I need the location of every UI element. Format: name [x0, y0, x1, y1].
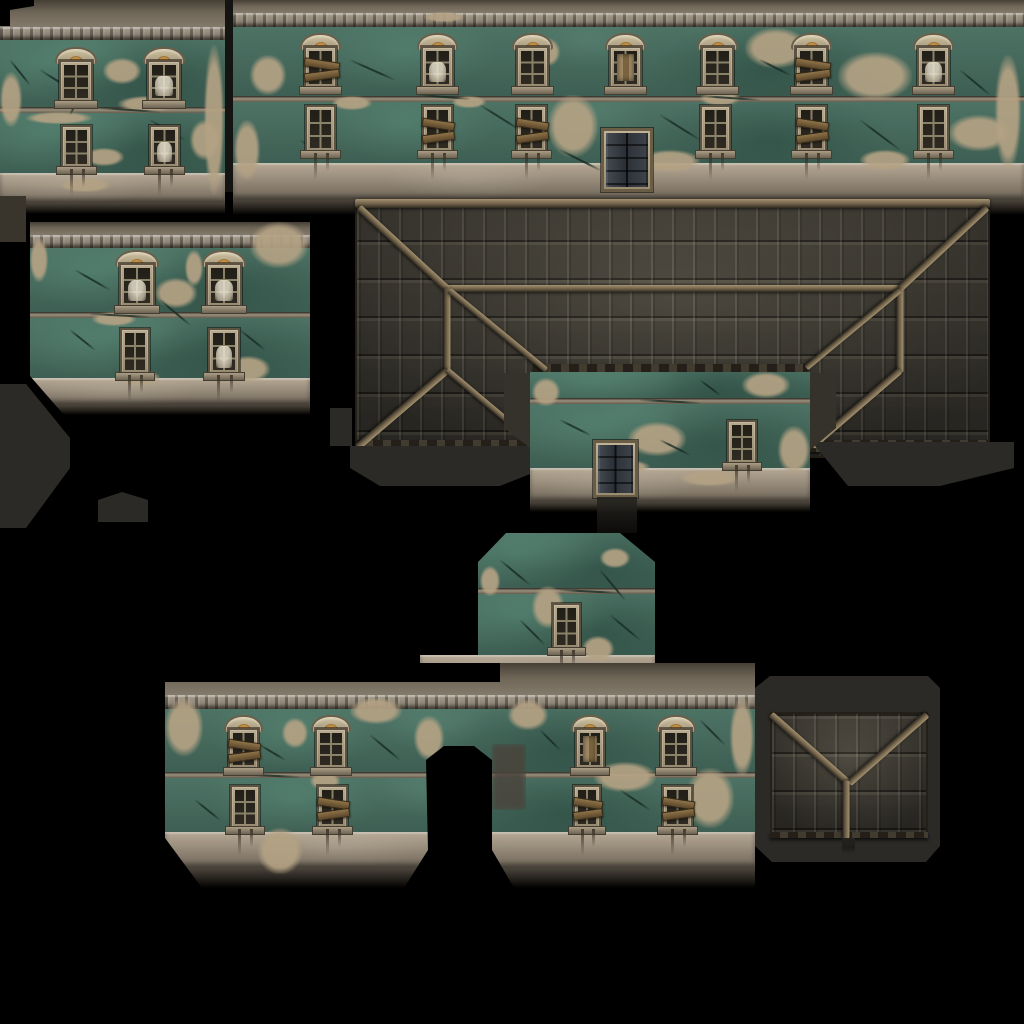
window-glass [213, 333, 235, 370]
window-ornate [59, 47, 93, 103]
window-plain [918, 105, 949, 153]
window-sill [223, 767, 264, 776]
window-stain [250, 829, 253, 847]
window-sill [696, 86, 739, 95]
window-frame [61, 125, 92, 169]
plaster-damage [424, 12, 464, 22]
window-plain [120, 328, 150, 375]
window-shutter [583, 736, 597, 762]
window-frame [660, 728, 692, 770]
window-frame [727, 420, 757, 465]
window-frame [208, 328, 240, 375]
window-glass [614, 51, 637, 84]
window-glass [665, 733, 687, 765]
window-sill [299, 86, 342, 95]
window-sill [203, 372, 245, 381]
window-curtain [429, 62, 446, 82]
window-stain [314, 153, 317, 180]
window-stain [230, 375, 233, 393]
window-frame [662, 785, 693, 829]
window-glass [923, 110, 944, 148]
plaster-damage [838, 52, 912, 100]
window-plain [573, 785, 601, 829]
window-sill [790, 86, 833, 95]
plaster-damage [103, 58, 141, 84]
window-stain [927, 153, 930, 180]
window-glass [705, 110, 726, 148]
window-sill [115, 372, 155, 381]
window-sill [142, 100, 186, 109]
window-ornate [315, 715, 347, 770]
window-stain [128, 375, 131, 402]
window-frame [516, 46, 549, 89]
window-ornate [228, 715, 259, 770]
window-frame [575, 728, 605, 770]
plaster-damage [730, 698, 754, 776]
door-leaf [598, 445, 633, 493]
facade-left-mid [30, 222, 310, 415]
window-plain [422, 105, 453, 153]
window-stain [581, 829, 584, 856]
window-frame [119, 263, 155, 308]
window-stain [170, 169, 173, 187]
window-glass [310, 110, 331, 148]
window-frame [147, 60, 181, 103]
window-plain [208, 328, 240, 375]
roof-ridge-beam [447, 285, 900, 292]
window-stain [431, 153, 434, 180]
window-stain [217, 375, 220, 402]
window-sill [657, 826, 698, 835]
plaster-damage [282, 718, 308, 748]
window-plain [516, 105, 547, 153]
window-sill [912, 86, 955, 95]
uv-seam-top [225, 0, 233, 192]
window-glass [557, 608, 576, 645]
window-curtain [155, 76, 172, 96]
window-stain [140, 375, 143, 393]
window-stain [592, 829, 595, 847]
window-frame [422, 105, 453, 153]
window-frame [304, 46, 337, 89]
window-frame [552, 603, 581, 650]
window-stain [721, 153, 724, 171]
facade-rear-door [530, 372, 810, 512]
plaster-damage [548, 95, 598, 157]
window-ornate [421, 33, 454, 89]
facade-top-left-band-base [0, 173, 225, 203]
window-stain [939, 153, 942, 171]
window-sill [56, 166, 97, 175]
window-glass [64, 65, 88, 98]
plaster-damage [686, 768, 734, 828]
window-sill [511, 150, 552, 159]
facade-left-mid-band-fade [30, 405, 310, 415]
facade-strip-bottom-band-cornice [165, 695, 755, 709]
entrance-door [593, 440, 638, 498]
window-stain [709, 153, 712, 180]
window-glass [922, 51, 945, 84]
facade-top-left-band-cornice [0, 27, 225, 40]
window-glass [521, 51, 544, 84]
window-frame [918, 105, 949, 153]
window-sill [416, 86, 459, 95]
window-stain [326, 829, 329, 856]
window-stain [525, 153, 528, 180]
window-glass [66, 130, 87, 164]
window-glass [152, 65, 176, 98]
plaster-damage [185, 250, 203, 286]
window-sill [570, 767, 610, 776]
uv-margin-under-roof-right [812, 442, 1014, 486]
plaster-damage [995, 55, 1021, 170]
plaster-damage [30, 238, 48, 282]
plaster-damage [582, 636, 614, 662]
window-curtain [157, 142, 172, 162]
window-plain [700, 105, 731, 153]
window-sill [225, 826, 265, 835]
window-frame [795, 46, 828, 89]
window-frame [796, 105, 827, 153]
window-frame [573, 785, 601, 829]
facade-top-left [0, 0, 225, 214]
plaster-damage [165, 698, 203, 756]
window-ornate [701, 33, 734, 89]
window-glass [235, 790, 255, 824]
window-glass [732, 425, 752, 460]
plaster-damage [26, 112, 92, 124]
plaster-damage [600, 548, 630, 568]
door-leaf [606, 133, 648, 187]
window-frame [317, 785, 348, 829]
window-sill [144, 166, 185, 175]
window-plain [230, 785, 260, 829]
roof-ridge-beam [897, 288, 904, 372]
window-glass [426, 51, 449, 84]
window-sill [312, 826, 353, 835]
window-frame [59, 60, 93, 103]
window-stain [805, 153, 808, 180]
window-frame [701, 46, 734, 89]
plaster-damage [250, 55, 286, 95]
window-ornate [119, 250, 155, 308]
window-frame [206, 263, 242, 308]
window-glass [580, 733, 600, 765]
facade-rear-door-band-fade [530, 502, 810, 512]
window-plain [552, 603, 581, 650]
window-stain [82, 169, 85, 187]
window-frame [230, 785, 260, 829]
facade-strip-top-band-blur [233, 0, 1024, 13]
window-sill [604, 86, 647, 95]
window-stain [338, 829, 341, 847]
window-sill [201, 305, 247, 314]
window-curtain [925, 62, 942, 82]
window-ornate [304, 33, 337, 89]
uv-cut-bottom-strip-top-left [165, 663, 500, 682]
window-sill [417, 150, 458, 159]
plaster-damage [778, 426, 810, 474]
window-sill [300, 150, 341, 159]
window-sill [511, 86, 554, 95]
window-glass [706, 51, 729, 84]
entrance-door [601, 128, 653, 192]
window-plain [796, 105, 827, 153]
window-plain [317, 785, 348, 829]
window-glass [320, 733, 342, 765]
window-glass [211, 268, 237, 303]
window-shutter [617, 54, 634, 81]
window-stain [747, 465, 750, 483]
window-frame [149, 125, 180, 169]
window-stain [683, 829, 686, 847]
roof-ridge-beam [843, 780, 850, 838]
window-sill [547, 647, 586, 656]
window-stain [158, 169, 161, 196]
window-ornate [609, 33, 642, 89]
window-sill [310, 767, 352, 776]
uv-margin-roof-left-sliver [330, 408, 352, 446]
plaster-damage [190, 120, 220, 160]
plaster-damage [332, 96, 372, 110]
window-plain [61, 125, 92, 169]
window-frame [228, 728, 259, 770]
window-ornate [660, 715, 692, 770]
window-stain [238, 829, 241, 856]
window-ornate [147, 47, 181, 103]
window-sill [568, 826, 606, 835]
ridge-shadow-streak [842, 838, 855, 854]
window-sill [722, 462, 762, 471]
window-frame [315, 728, 347, 770]
plaster-damage [350, 698, 402, 724]
window-frame [700, 105, 731, 153]
window-curtain [128, 280, 147, 301]
window-stain [326, 153, 329, 171]
plaster-damage [680, 470, 740, 486]
window-ornate [917, 33, 950, 89]
window-ornate [206, 250, 242, 308]
uv-margin-small-left [98, 492, 148, 522]
window-ornate [795, 33, 828, 89]
plaster-damage [480, 566, 500, 596]
window-stain [537, 153, 540, 171]
window-glass [125, 333, 145, 370]
uv-blur-column-bottom-strip [492, 744, 526, 810]
window-plain [305, 105, 336, 153]
plaster-damage [508, 700, 548, 730]
window-plain [662, 785, 693, 829]
window-stain [671, 829, 674, 856]
window-frame [917, 46, 950, 89]
window-plain [727, 420, 757, 465]
facade-rear-door-band-base [530, 468, 810, 502]
window-stain [817, 153, 820, 171]
facade-left-mid-band-base [30, 378, 310, 405]
plaster-damage [860, 150, 910, 170]
window-frame [421, 46, 454, 89]
window-curtain [216, 346, 232, 368]
texture-atlas: weathered-building-facade-texture-atlas [0, 0, 1024, 1024]
window-frame [120, 328, 150, 375]
window-frame [305, 105, 336, 153]
window-curtain [215, 280, 234, 301]
uv-margin-under-roof-left [350, 446, 535, 486]
plaster-damage [234, 120, 260, 180]
roof-ridge-beam [444, 288, 451, 372]
window-sill [695, 150, 736, 159]
window-frame [516, 105, 547, 153]
window-ornate [575, 715, 605, 770]
facade-top-left-band-fade [0, 203, 225, 214]
uv-margin-left-edge-bars [0, 196, 26, 242]
window-stain [735, 465, 738, 492]
plaster-damage [0, 72, 22, 127]
window-glass [154, 130, 175, 164]
plaster-damage [742, 372, 790, 398]
window-sill [54, 100, 98, 109]
plaster-damage [250, 222, 308, 268]
window-glass [124, 268, 150, 303]
window-ornate [516, 33, 549, 89]
window-plain [149, 125, 180, 169]
roof-ridge-beam [355, 199, 990, 208]
facade-strip-top-band-cornice [233, 13, 1024, 27]
plaster-damage [532, 378, 560, 406]
window-stain [443, 153, 446, 171]
window-sill [791, 150, 832, 159]
window-stain [70, 169, 73, 196]
window-sill [114, 305, 160, 314]
window-sill [655, 767, 697, 776]
facade-strip-top [233, 0, 1024, 215]
window-sill [913, 150, 954, 159]
window-frame [609, 46, 642, 89]
